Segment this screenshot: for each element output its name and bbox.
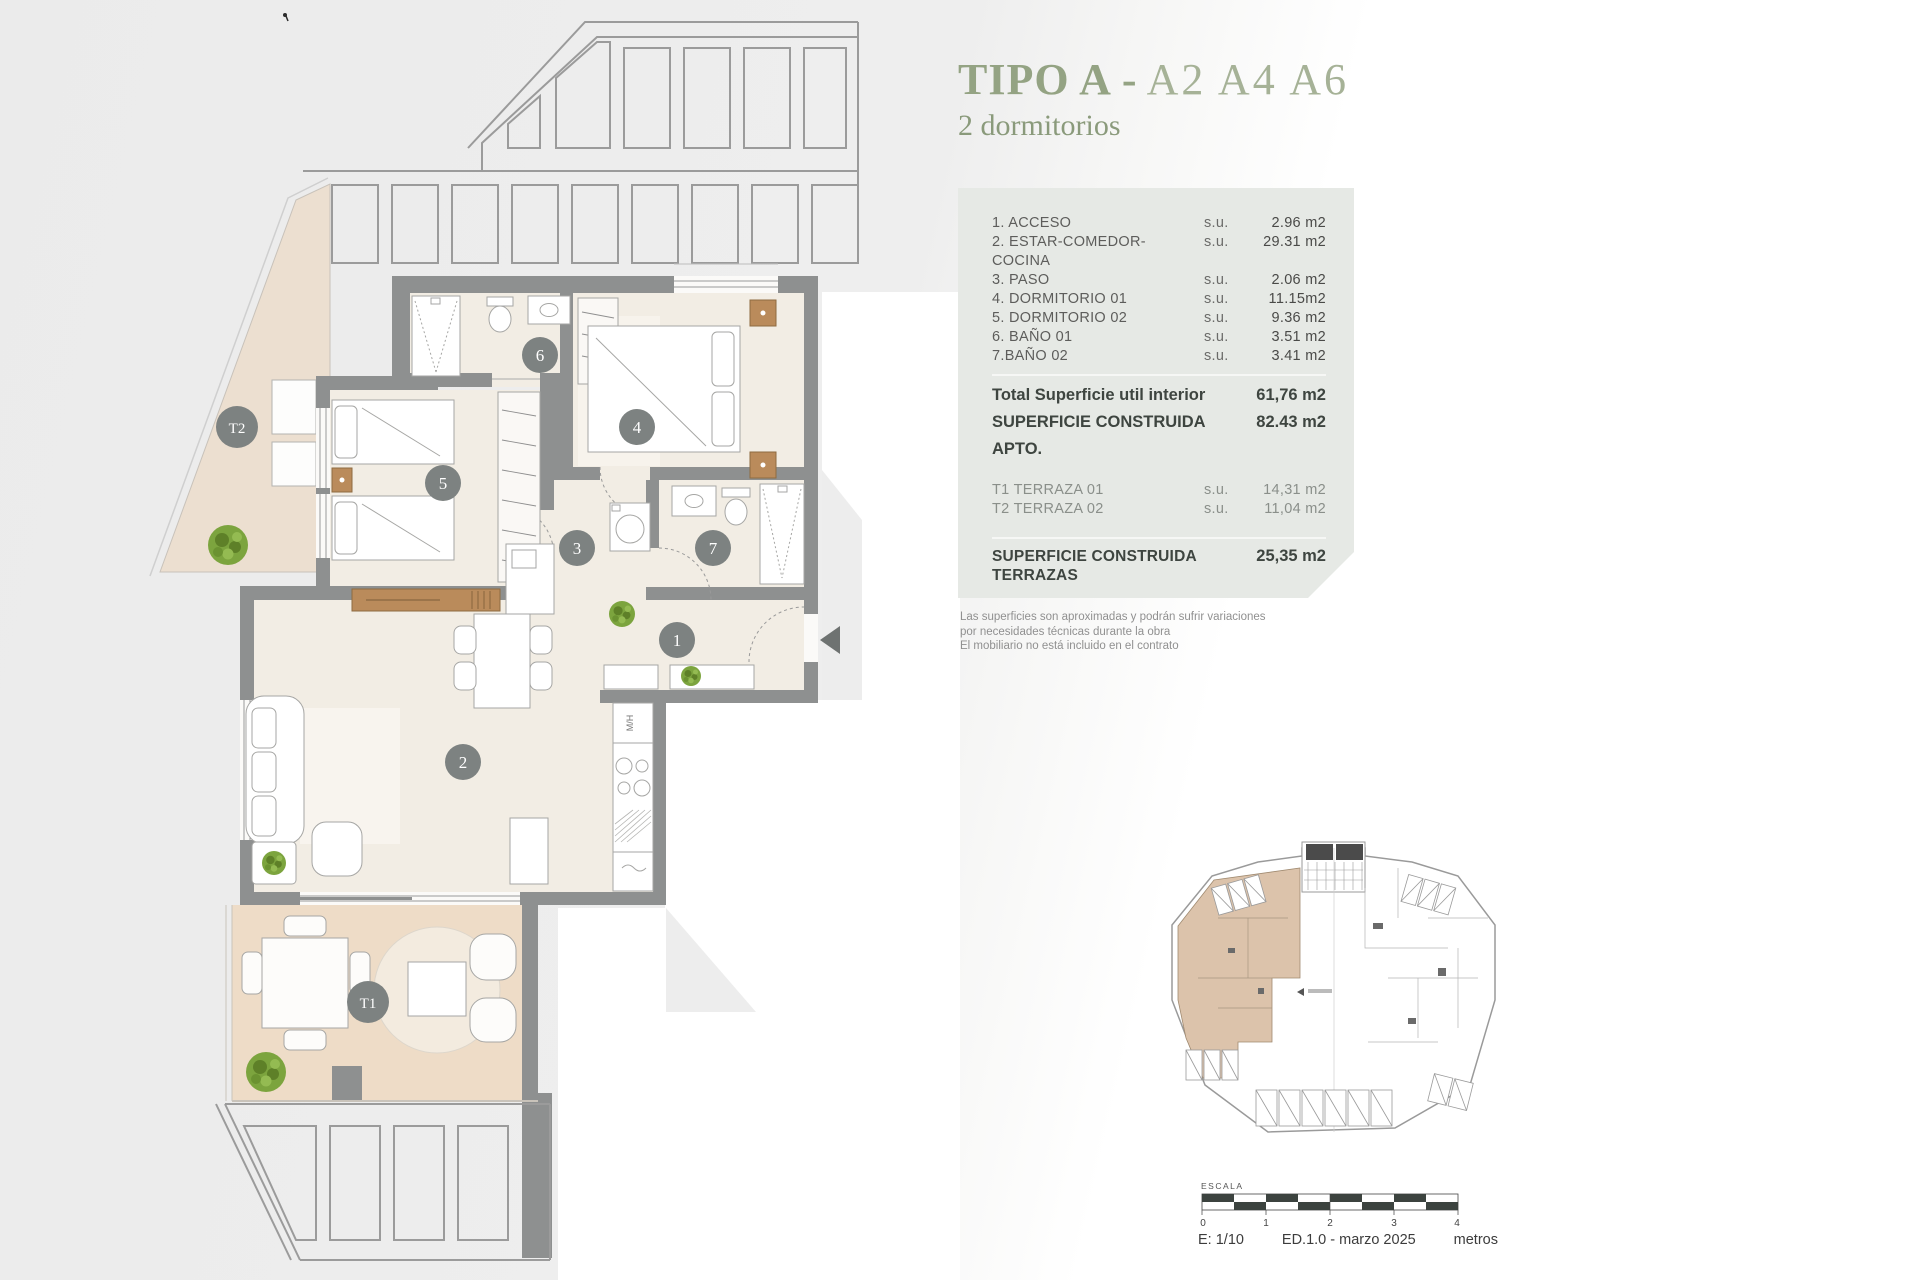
svg-text:2: 2 <box>1327 1218 1333 1229</box>
room-value: 3.41 m2 <box>1246 347 1326 366</box>
room-label: 6. BAÑO 01 <box>992 328 1204 347</box>
title-block: TIPO A-A2 A4 A6 2 dormitorios <box>958 56 1349 146</box>
chair <box>530 662 552 690</box>
coffee-table <box>408 962 466 1016</box>
svg-text:4: 4 <box>1454 1218 1460 1229</box>
pillow <box>712 332 734 386</box>
label-room-4: 4 <box>619 409 655 445</box>
room-value: 29.31 m2 <box>1246 233 1326 271</box>
type-name: TIPO A <box>958 55 1112 104</box>
scale-bar: ESCALA 0 1 2 3 4 <box>1198 1180 1468 1238</box>
label-terrace-t2: T2 <box>216 406 258 448</box>
room-label: 3. PASO <box>992 271 1204 290</box>
built-apartment-row: SUPERFICIE CONSTRUIDA APTO.82.43 m2 <box>992 409 1326 463</box>
floorplan-page: M/H <box>0 0 1920 1280</box>
divider <box>992 603 1326 605</box>
cabinet <box>604 665 658 689</box>
room-label: 5. DORMITORIO 02 <box>992 309 1204 328</box>
room-row: 7.BAÑO 02s.u.3.41 m2 <box>992 347 1326 366</box>
edition-date: ED.1.0 - marzo 2025 <box>1282 1232 1416 1248</box>
room-value: 9.36 m2 <box>1246 309 1326 328</box>
kitchen-sink <box>613 852 653 891</box>
svg-text:T1: T1 <box>360 996 377 1012</box>
page-title: TIPO A-A2 A4 A6 <box>958 56 1349 104</box>
room-row: 1. ACCESOs.u.2.96 m2 <box>992 214 1326 233</box>
interior-total-row: Total Superficie util interior61,76 m2 <box>992 382 1326 409</box>
appliance-label: M/H <box>625 715 635 732</box>
room-row: 4. DORMITORIO 01s.u.11.15m2 <box>992 290 1326 309</box>
terrace-row: T2 TERRAZA 02s.u.11,04 m2 <box>992 500 1326 519</box>
room-label: 4. DORMITORIO 01 <box>992 290 1204 309</box>
dining-table <box>474 614 530 708</box>
label-room-2: 2 <box>445 744 481 780</box>
room-value: 2.96 m2 <box>1246 214 1326 233</box>
divider <box>992 374 1326 376</box>
chair <box>284 1030 326 1050</box>
shower <box>760 484 804 584</box>
room-value: 3.51 m2 <box>1246 328 1326 347</box>
svg-text:7: 7 <box>709 539 718 558</box>
chair <box>242 952 262 994</box>
svg-text:1: 1 <box>673 631 682 650</box>
label-terrace-t1: T1 <box>347 981 389 1023</box>
room-value: 11.15m2 <box>1246 290 1326 309</box>
pergola-top <box>303 22 858 263</box>
label-room-7: 7 <box>695 530 731 566</box>
chair <box>530 626 552 654</box>
planter <box>272 380 316 434</box>
svg-text:1: 1 <box>1263 1218 1269 1229</box>
svg-text:2: 2 <box>459 753 468 772</box>
room-label: 7.BAÑO 02 <box>992 347 1204 366</box>
pillow <box>335 502 357 554</box>
svg-text:4: 4 <box>633 418 642 437</box>
svg-text:5: 5 <box>439 474 448 493</box>
terrace-t2 <box>150 178 330 576</box>
svg-text:T2: T2 <box>229 421 246 437</box>
pillow <box>712 392 734 446</box>
room-label: 1. ACCESO <box>992 214 1204 233</box>
room-row: 3. PASOs.u.2.06 m2 <box>992 271 1326 290</box>
terrace-row: T1 TERRAZA 01s.u.14,31 m2 <box>992 481 1326 500</box>
shower <box>412 296 460 376</box>
key-plan <box>1158 828 1518 1158</box>
svg-text:0: 0 <box>1200 1218 1206 1229</box>
tick-marks <box>1202 1210 1458 1215</box>
outdoor-table <box>262 938 348 1028</box>
chair <box>284 916 326 936</box>
toilet <box>487 297 513 306</box>
room-row: 6. BAÑO 01s.u.3.51 m2 <box>992 328 1326 347</box>
terrace-planter-box <box>332 1066 362 1102</box>
unit-codes: A2 A4 A6 <box>1147 55 1349 104</box>
room-value: 2.06 m2 <box>1246 271 1326 290</box>
label-room-5: 5 <box>425 465 461 501</box>
room-row: 5. DORMITORIO 02s.u.9.36 m2 <box>992 309 1326 328</box>
armchair <box>470 998 516 1042</box>
scale-captions: E: 1/10 ED.1.0 - marzo 2025 metros <box>1198 1232 1498 1248</box>
built-terraces-row: SUPERFICIE CONSTRUIDA TERRAZAS 25,35 m2 <box>992 547 1326 585</box>
scale-ratio: E: 1/10 <box>1198 1232 1244 1248</box>
planter <box>272 442 316 486</box>
floor-plan: M/H <box>0 0 960 1280</box>
pergola-bottom <box>216 1104 550 1260</box>
pillow <box>335 406 357 458</box>
chair <box>454 626 476 654</box>
core-tower <box>1302 842 1365 892</box>
room-label: 2. ESTAR-COMEDOR-COCINA <box>992 233 1204 271</box>
chair <box>454 662 476 690</box>
checker-bar <box>1202 1194 1458 1210</box>
kitchen: M/H <box>613 703 653 891</box>
units-label: metros <box>1454 1232 1498 1248</box>
corner-mark <box>283 13 288 21</box>
disclaimer: Las superficies son aproximadas y podrán… <box>960 610 1266 654</box>
svg-text:3: 3 <box>573 539 582 558</box>
tick-labels: 0 1 2 3 4 <box>1200 1218 1460 1229</box>
surface-panel: 1. ACCESOs.u.2.96 m2 2. ESTAR-COMEDOR-CO… <box>958 188 1354 598</box>
svg-text:3: 3 <box>1391 1218 1397 1229</box>
scale-title: ESCALA <box>1201 1181 1244 1191</box>
armchair <box>312 822 362 876</box>
divider <box>992 537 1326 539</box>
room-row: 2. ESTAR-COMEDOR-COCINAs.u.29.31 m2 <box>992 233 1326 271</box>
label-room-3: 3 <box>559 530 595 566</box>
label-room-6: 6 <box>522 337 558 373</box>
toilet <box>722 488 750 497</box>
subtitle: 2 dormitorios <box>958 106 1349 146</box>
kitchen-island <box>510 818 548 884</box>
label-room-1: 1 <box>659 622 695 658</box>
armchair <box>470 934 516 980</box>
svg-text:6: 6 <box>536 346 545 365</box>
